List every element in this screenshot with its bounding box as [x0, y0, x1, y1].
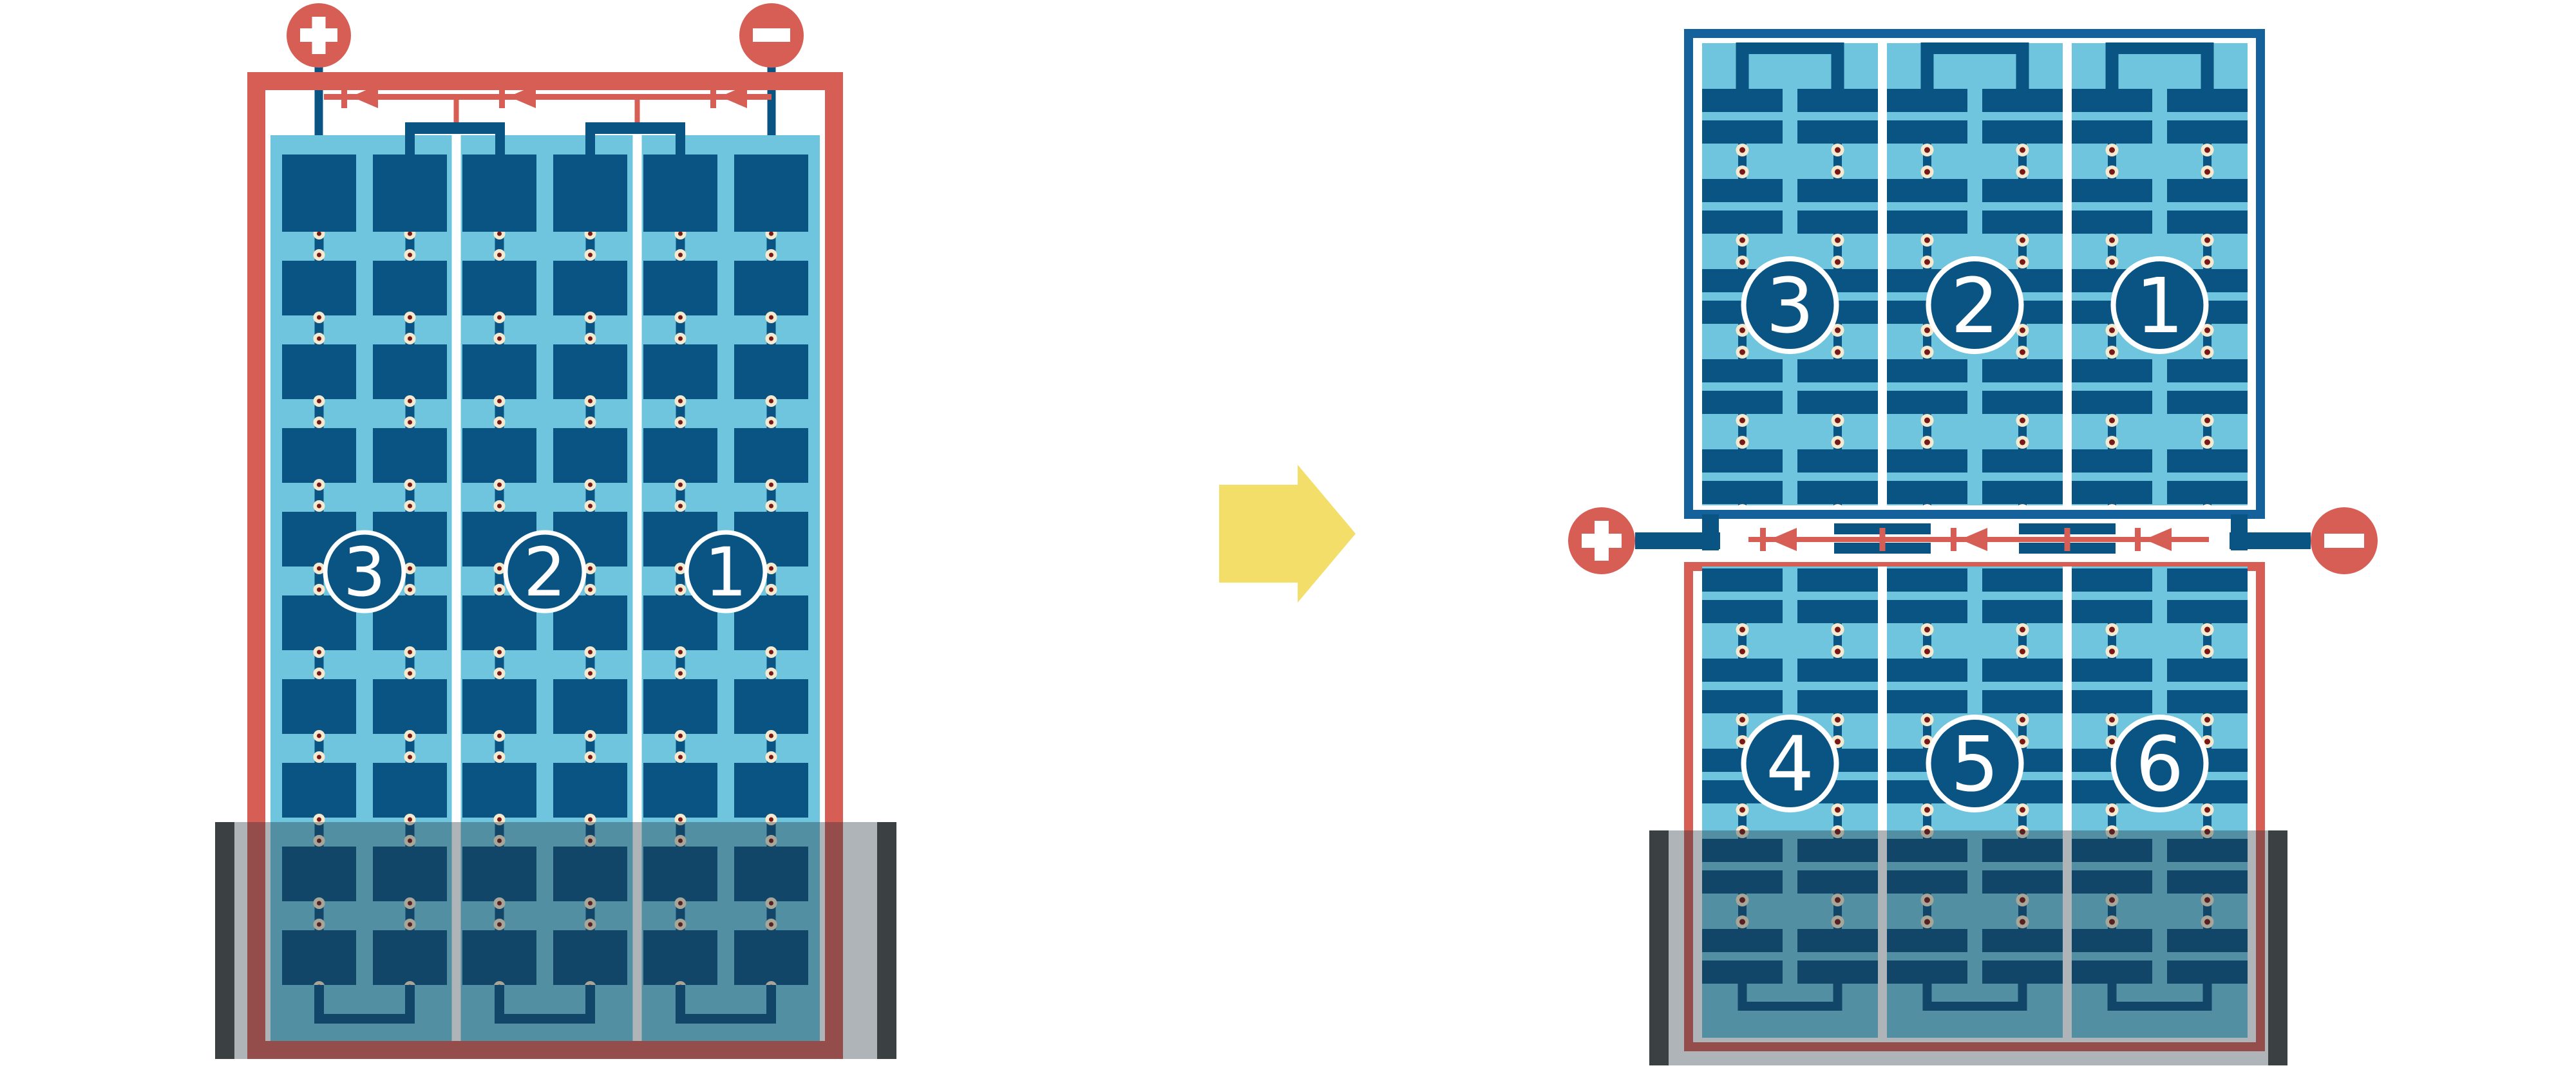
string-badge: 6 [2114, 717, 2206, 810]
shade-edge-bar [2268, 830, 2287, 1065]
string-label: 2 [1951, 261, 1999, 350]
minus-icon [2324, 534, 2364, 548]
positive-lead [1635, 532, 1720, 549]
before-panel: 3 2 1 + − [215, 3, 896, 1059]
string-badge: 1 [2114, 259, 2206, 351]
bus-tap [1880, 528, 1886, 551]
diode-bus [324, 85, 772, 130]
diagram-stage: 3 2 1 + − [0, 0, 2576, 1068]
string-label: 3 [1766, 261, 1814, 350]
string-label: 2 [524, 533, 566, 612]
bus-wire [324, 94, 772, 100]
shade-overlay [215, 822, 896, 1059]
string-badge: 1 [687, 532, 765, 612]
positive-terminal: + [287, 3, 351, 68]
after-bottom-panel: 4 5 6 [1649, 567, 2287, 1065]
shade-edge-bar [215, 822, 234, 1059]
transition-arrow-icon [1219, 465, 1356, 603]
negative-terminal: − [739, 3, 804, 68]
after-assembly: 3 2 1 [1568, 33, 2378, 1065]
string-label: 3 [343, 533, 386, 612]
shade-overlay [1649, 830, 2287, 1065]
positive-terminal: + [1568, 507, 1635, 574]
negative-lead [2230, 532, 2311, 549]
string-badge: 3 [1744, 259, 1837, 351]
string-badge: 5 [1929, 717, 2022, 810]
shade-edge-bar [1649, 830, 1669, 1065]
string-label: 5 [1951, 720, 1999, 809]
shade-edge-bar [877, 822, 896, 1059]
string-label: 6 [2136, 720, 2184, 809]
panel-wiring-diagram: 3 2 1 + − [0, 0, 2576, 1068]
after-top-panel: 3 2 1 [1689, 33, 2260, 514]
string-badge: 2 [1929, 259, 2022, 351]
string-badge: 3 [325, 532, 404, 612]
string-badge: 4 [1744, 717, 1837, 810]
minus-icon [753, 28, 790, 42]
string-label: 1 [2136, 261, 2184, 350]
string-label: 4 [1766, 720, 1814, 809]
string-badge: 2 [506, 532, 584, 612]
string-label: 1 [705, 533, 747, 612]
bus-tap [2065, 528, 2070, 551]
negative-terminal: − [2311, 507, 2378, 574]
